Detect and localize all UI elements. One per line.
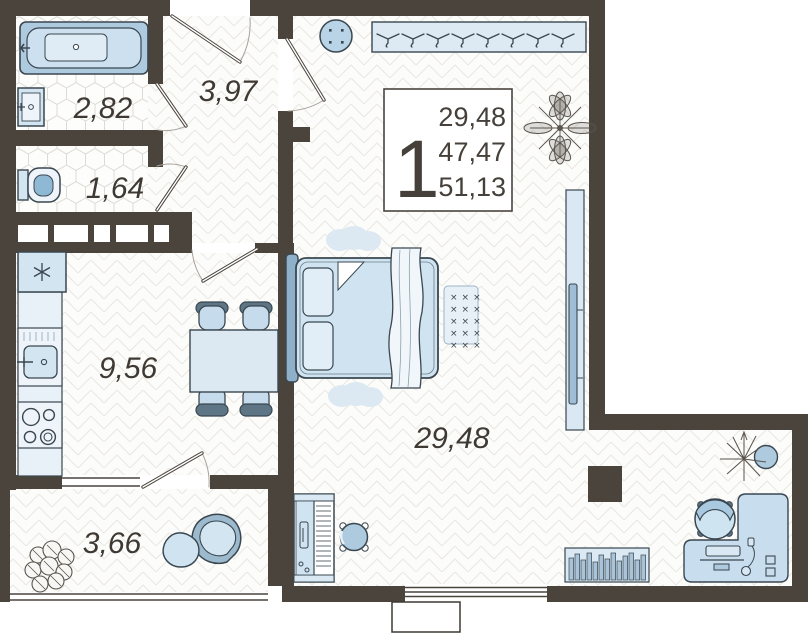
bathroom-sink-icon [17, 88, 44, 126]
chair-icon [196, 302, 228, 330]
balcony-outline [392, 602, 460, 632]
chair-icon [240, 302, 272, 330]
living-room-area-label: 29,48 [413, 422, 489, 455]
monitor-icon [706, 546, 740, 556]
wc-area-label: 1,64 [86, 172, 144, 205]
wardrobe-icon [372, 22, 586, 52]
floor-plan-canvas: 1 29,48 47,47 51,13 ××× ××× ××× ××× ××× [0, 0, 808, 640]
toilet-icon [18, 168, 60, 202]
column [588, 466, 622, 502]
lounge-chair-icon [192, 514, 241, 563]
floor-plan: 1 29,48 47,47 51,13 ××× ××× ××× ××× ××× [0, 0, 808, 640]
tv-icon [566, 190, 584, 430]
svg-text:×××: ××× [450, 317, 485, 327]
bathroom-area-label: 2,82 [73, 92, 133, 125]
loggia-glazing [10, 592, 268, 602]
bed-icon [286, 248, 438, 388]
piano-stool-icon [340, 523, 368, 551]
room-count: 1 [394, 124, 440, 215]
pouf-icon [320, 20, 352, 52]
piano-icon [294, 494, 334, 582]
pillow-icon [303, 322, 333, 370]
stove-icon [18, 402, 62, 448]
bathtub-icon [20, 22, 148, 74]
bookshelf-icon [565, 548, 649, 582]
bedside-mat-icon: ××× ××× ××× ××× ××× [444, 286, 485, 351]
info-box: 1 29,48 47,47 51,13 [384, 89, 512, 215]
fridge-icon [18, 252, 66, 292]
loggia-area-label: 3,66 [83, 527, 142, 560]
bed-throw [389, 248, 423, 388]
kitchen-area-label: 9,56 [99, 352, 158, 385]
svg-text:×××: ××× [450, 293, 485, 303]
total-area-value: 51,13 [438, 172, 506, 202]
living-area-value: 29,48 [438, 102, 506, 132]
svg-text:×××: ××× [450, 329, 485, 339]
living-room-window [392, 584, 547, 632]
desk-chair-icon [695, 499, 735, 539]
hallway-area-label: 3,97 [199, 75, 259, 108]
kitchen-loggia-window [62, 475, 140, 489]
pillow-icon [303, 268, 333, 316]
svg-text:×××: ××× [450, 341, 485, 351]
apartment-area-value: 47,47 [438, 137, 506, 167]
keyboard-icon [714, 564, 729, 570]
kitchen-sink-icon [17, 328, 62, 386]
ottoman-icon [163, 533, 199, 567]
hallway-floor [148, 16, 278, 243]
svg-text:×××: ××× [450, 305, 485, 315]
